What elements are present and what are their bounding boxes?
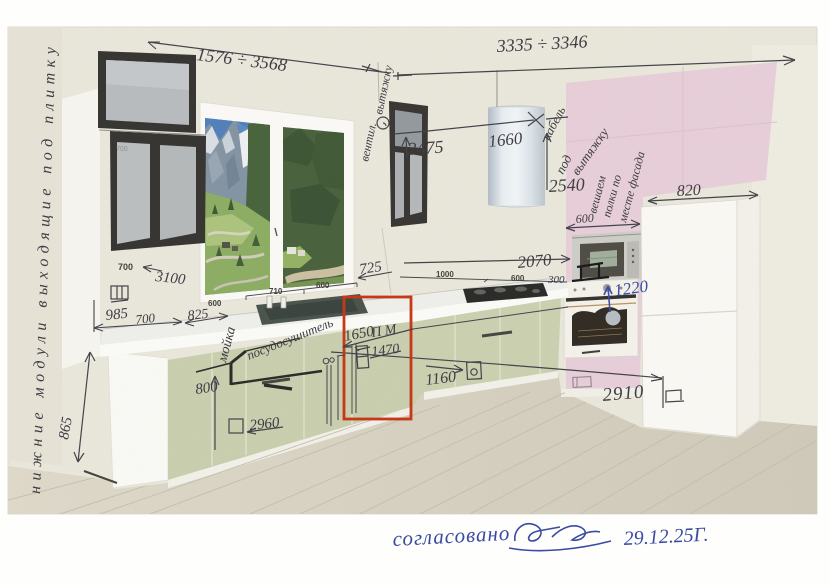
svg-text:700: 700 bbox=[135, 310, 156, 327]
svg-text:2475: 2475 bbox=[407, 137, 444, 159]
svg-text:710: 710 bbox=[269, 287, 283, 296]
svg-text:1000: 1000 bbox=[436, 270, 454, 279]
svg-text:600: 600 bbox=[316, 281, 330, 290]
svg-text:2910: 2910 bbox=[602, 381, 646, 406]
svg-text:29.12.25Г.: 29.12.25Г. bbox=[623, 524, 709, 550]
svg-text:3100: 3100 bbox=[154, 269, 187, 288]
svg-text:800: 800 bbox=[194, 379, 219, 398]
svg-text:985: 985 bbox=[105, 306, 130, 324]
svg-text:2070: 2070 bbox=[517, 250, 553, 272]
svg-text:600: 600 bbox=[208, 299, 222, 308]
svg-text:1660: 1660 bbox=[487, 128, 523, 151]
svg-text:2960: 2960 bbox=[249, 415, 281, 434]
svg-text:700: 700 bbox=[118, 262, 133, 272]
svg-text:600: 600 bbox=[511, 274, 525, 283]
svg-text:300: 300 bbox=[547, 274, 565, 286]
svg-text:825: 825 bbox=[187, 307, 209, 324]
svg-text:820: 820 bbox=[676, 182, 701, 200]
svg-text:725: 725 bbox=[358, 259, 383, 278]
